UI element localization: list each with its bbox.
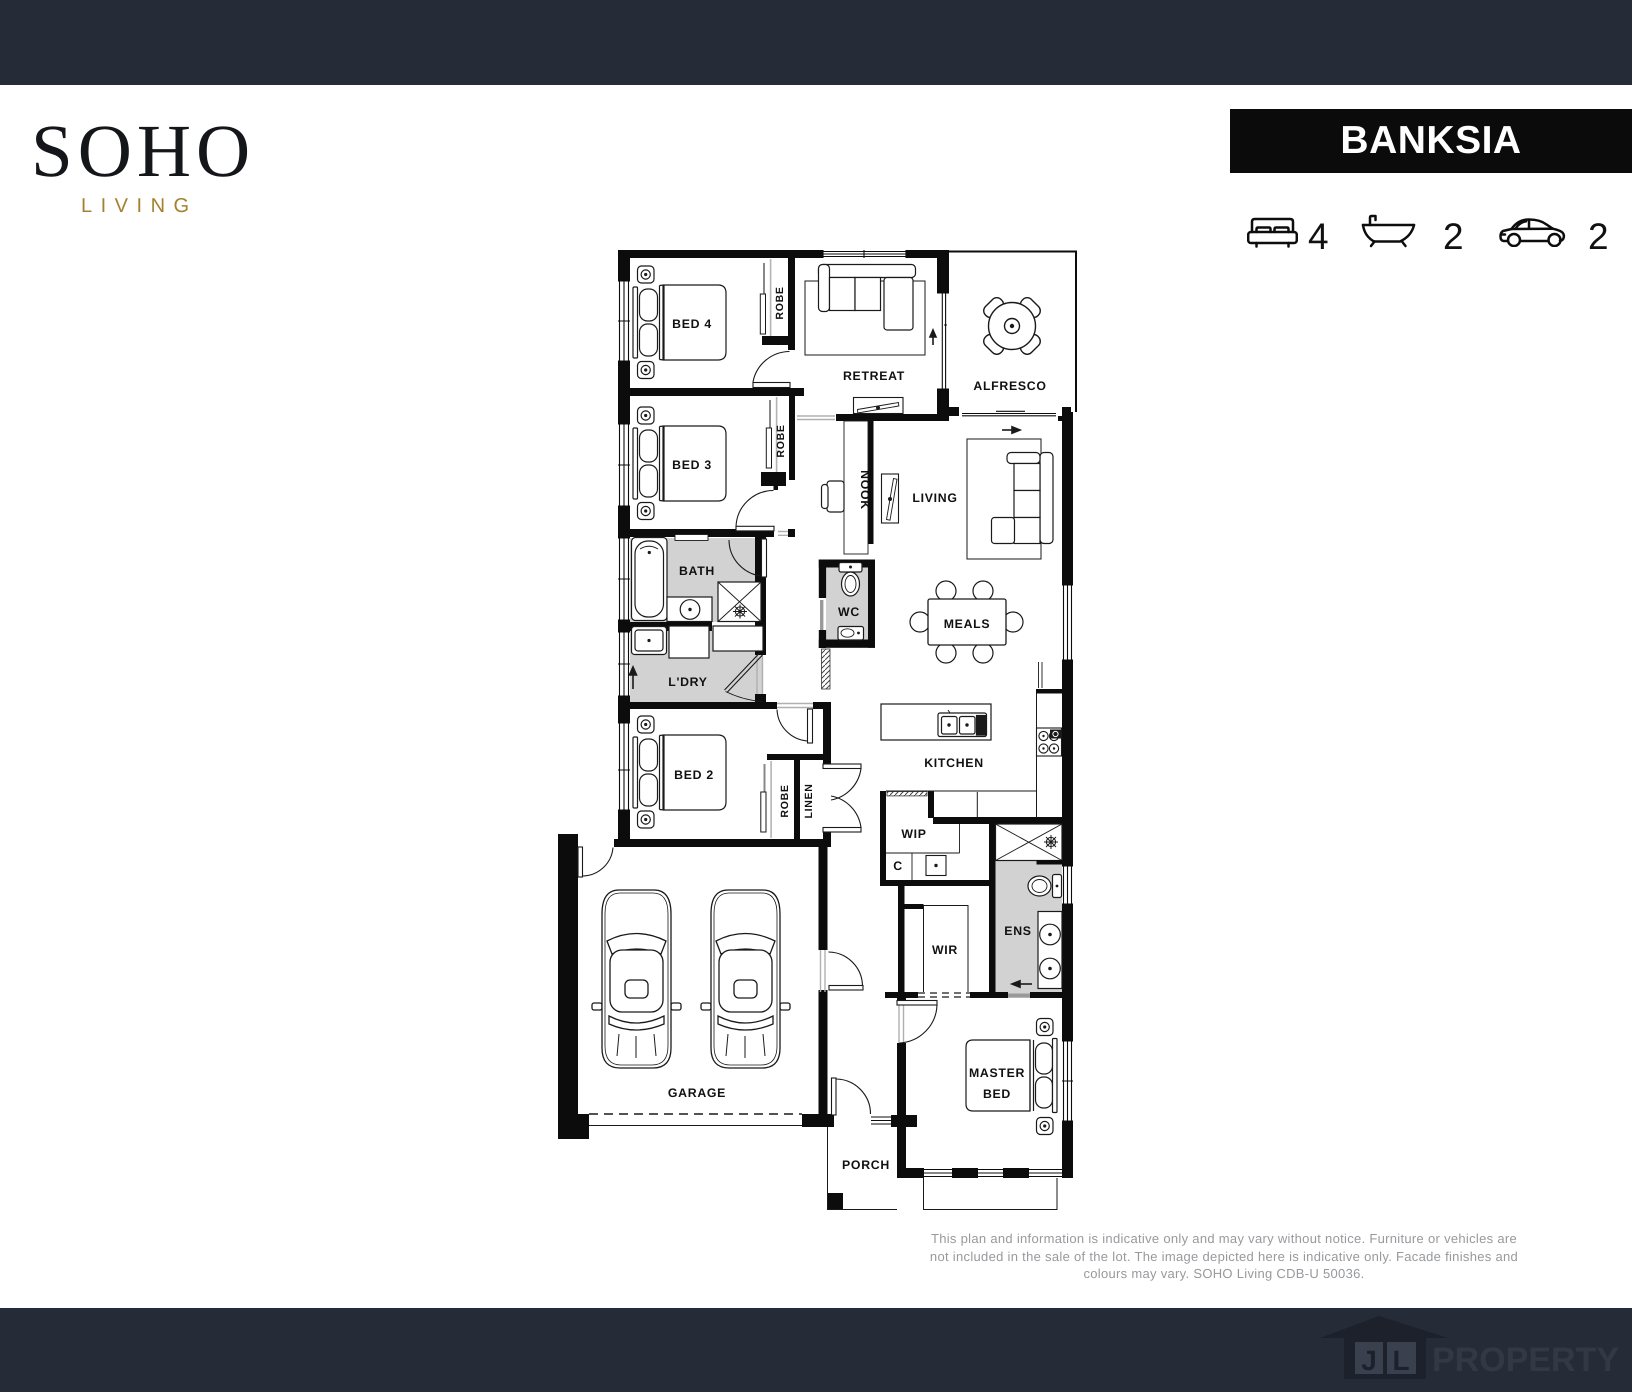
svg-text:ALFRESCO: ALFRESCO — [973, 379, 1046, 393]
svg-text:WC: WC — [838, 605, 860, 619]
svg-text:GARAGE: GARAGE — [668, 1086, 726, 1100]
svg-text:WIR: WIR — [932, 943, 958, 957]
svg-text:MEALS: MEALS — [944, 617, 991, 631]
svg-text:J: J — [1361, 1345, 1377, 1376]
svg-text:L'DRY: L'DRY — [668, 675, 707, 689]
svg-text:PORCH: PORCH — [842, 1158, 890, 1172]
svg-text:BED 4: BED 4 — [672, 317, 712, 331]
svg-text:NOOK: NOOK — [858, 470, 872, 510]
svg-text:ROBE: ROBE — [779, 784, 791, 817]
svg-text:BED: BED — [983, 1087, 1011, 1101]
svg-text:BED 3: BED 3 — [672, 458, 712, 472]
svg-text:BED 2: BED 2 — [674, 768, 714, 782]
svg-text:RETREAT: RETREAT — [843, 369, 905, 383]
svg-text:ROBE: ROBE — [774, 286, 786, 319]
svg-text:BATH: BATH — [679, 564, 715, 578]
svg-text:PROPERTY: PROPERTY — [1432, 1341, 1619, 1379]
svg-text:MASTER: MASTER — [969, 1066, 1025, 1080]
svg-text:LIVING: LIVING — [912, 491, 957, 505]
svg-text:C: C — [893, 859, 903, 873]
svg-text:L: L — [1392, 1345, 1409, 1376]
svg-text:WIP: WIP — [901, 827, 926, 841]
svg-text:LINEN: LINEN — [803, 784, 815, 819]
svg-text:ENS: ENS — [1004, 924, 1031, 938]
svg-text:ROBE: ROBE — [775, 424, 787, 457]
svg-text:KITCHEN: KITCHEN — [924, 756, 984, 770]
